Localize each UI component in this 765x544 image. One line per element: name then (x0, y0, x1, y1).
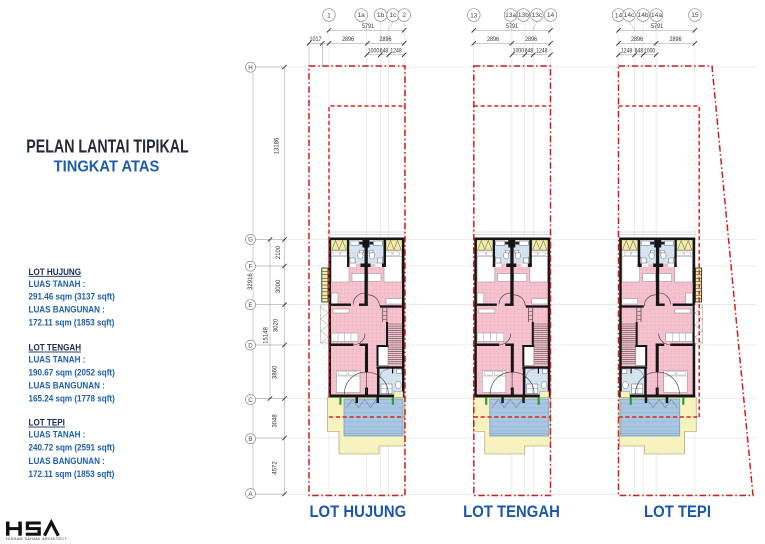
svg-text:LOT TEPI: LOT TEPI (644, 503, 711, 521)
svg-text:172.11 sqm (1853 sqft): 172.11 sqm (1853 sqft) (29, 317, 115, 328)
svg-text:13b: 13b (518, 12, 529, 19)
svg-text:291.46 sqm (3137 sqft): 291.46 sqm (3137 sqft) (29, 291, 115, 302)
svg-text:2: 2 (402, 12, 406, 19)
svg-text:14c: 14c (624, 12, 635, 19)
svg-text:2896: 2896 (631, 37, 643, 43)
svg-text:1000: 1000 (513, 48, 524, 54)
svg-text:1248: 1248 (621, 48, 632, 54)
svg-text:14b: 14b (638, 12, 649, 19)
svg-text:LOT HUJUNG: LOT HUJUNG (309, 503, 406, 521)
svg-text:32916: 32916 (248, 273, 254, 290)
svg-text:3000: 3000 (276, 279, 282, 293)
svg-text:1c: 1c (390, 12, 398, 19)
svg-text:LUAS TANAH :: LUAS TANAH : (29, 279, 86, 290)
svg-text:13c: 13c (532, 12, 543, 19)
svg-text:G: G (248, 237, 253, 244)
svg-text:3020: 3020 (274, 318, 280, 332)
svg-text:LUAS BANGUNAN :: LUAS BANGUNAN : (29, 380, 106, 391)
svg-text:1: 1 (327, 12, 331, 19)
svg-text:15148: 15148 (263, 326, 269, 343)
svg-text:13186: 13186 (274, 137, 280, 154)
svg-text:14: 14 (547, 12, 555, 19)
svg-text:LOT TEPI: LOT TEPI (29, 417, 65, 428)
svg-text:TINGKAT ATAS: TINGKAT ATAS (54, 158, 160, 176)
svg-text:1248: 1248 (536, 48, 547, 54)
svg-text:1017: 1017 (310, 37, 322, 43)
svg-text:648: 648 (635, 48, 643, 54)
svg-text:1000: 1000 (644, 48, 655, 54)
svg-text:LUAS BANGUNAN :: LUAS BANGUNAN : (29, 455, 106, 466)
svg-text:14a: 14a (651, 12, 662, 19)
svg-text:LOT TENGAH: LOT TENGAH (463, 503, 560, 521)
svg-text:2896: 2896 (525, 37, 537, 43)
svg-text:LUAS TANAH :: LUAS TANAH : (29, 354, 86, 365)
svg-text:13: 13 (470, 12, 478, 19)
svg-text:LOT HUJUNG: LOT HUJUNG (29, 266, 82, 277)
svg-text:HISHAM SAHANI ARCHITECT: HISHAM SAHANI ARCHITECT (6, 537, 68, 541)
svg-text:LUAS BANGUNAN :: LUAS BANGUNAN : (29, 304, 106, 315)
svg-text:5791: 5791 (651, 24, 663, 30)
svg-text:2896: 2896 (380, 37, 392, 43)
svg-text:172.11 sqm (1853 sqft): 172.11 sqm (1853 sqft) (29, 469, 115, 480)
svg-text:2896: 2896 (487, 37, 499, 43)
svg-text:1248: 1248 (390, 48, 401, 54)
svg-text:1000: 1000 (368, 48, 379, 54)
svg-text:B: B (248, 436, 252, 443)
svg-text:15: 15 (691, 12, 699, 19)
svg-text:D: D (248, 342, 253, 349)
svg-text:LOT TENGAH: LOT TENGAH (29, 342, 82, 353)
svg-text:648: 648 (380, 48, 388, 54)
svg-text:190.67 sqm (2052 sqft): 190.67 sqm (2052 sqft) (29, 367, 115, 378)
svg-text:2896: 2896 (670, 37, 682, 43)
svg-text:1a: 1a (358, 12, 366, 19)
svg-text:LUAS TANAH :: LUAS TANAH : (29, 429, 86, 440)
svg-text:5791: 5791 (362, 24, 374, 30)
svg-text:F: F (249, 263, 253, 270)
svg-text:3860: 3860 (273, 365, 279, 379)
svg-text:1b: 1b (377, 12, 385, 19)
svg-text:3048: 3048 (273, 414, 279, 428)
svg-text:4572: 4572 (273, 461, 279, 475)
svg-text:5791: 5791 (506, 24, 518, 30)
svg-text:C: C (248, 397, 253, 404)
svg-text:H: H (248, 64, 252, 71)
svg-text:648: 648 (525, 48, 533, 54)
svg-text:E: E (248, 302, 252, 309)
svg-text:13a: 13a (505, 12, 516, 19)
svg-text:2896: 2896 (342, 37, 354, 43)
svg-text:165.24 sqm (1778 sqft): 165.24 sqm (1778 sqft) (29, 393, 115, 404)
svg-text:PELAN LANTAI TIPIKAL: PELAN LANTAI TIPIKAL (26, 137, 189, 157)
svg-text:14: 14 (615, 12, 623, 19)
svg-text:2100: 2100 (276, 245, 282, 259)
svg-text:240.72 sqm (2591 sqft): 240.72 sqm (2591 sqft) (29, 442, 115, 453)
